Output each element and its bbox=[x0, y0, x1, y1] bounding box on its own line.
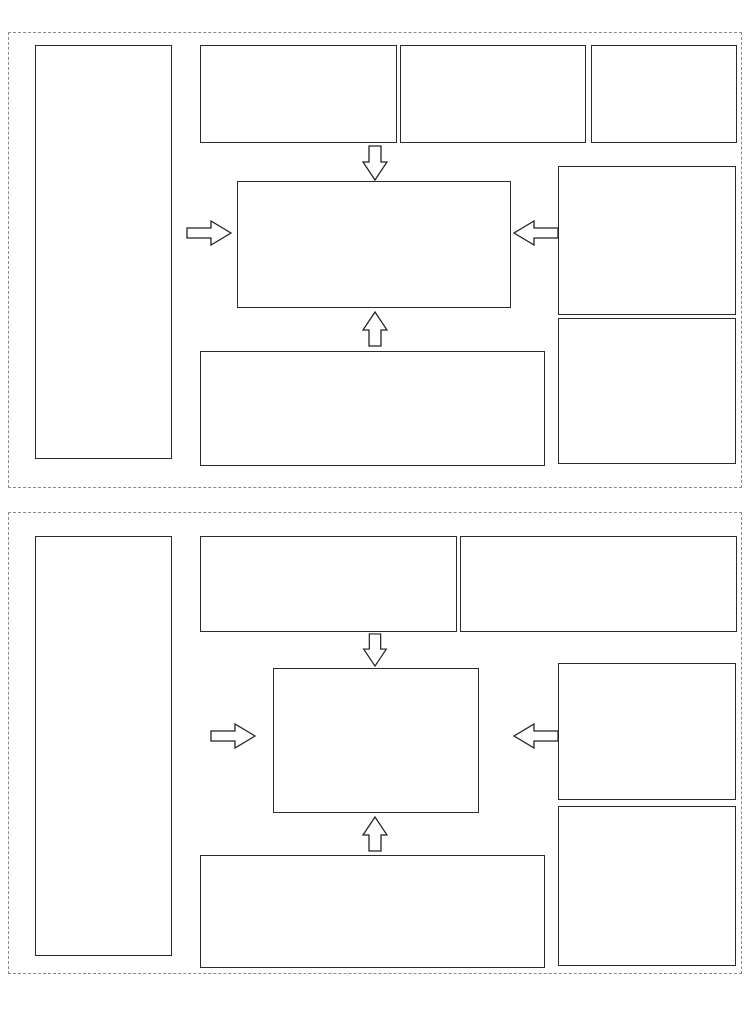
valve-control-inner bbox=[201, 352, 544, 465]
terminal-layout-box-s1 bbox=[237, 181, 511, 308]
output-box-s2 bbox=[558, 806, 736, 966]
flow-arrow-down-s1 bbox=[362, 145, 388, 181]
valve-control-box-s2 bbox=[200, 855, 545, 968]
sv-input-box-s1 bbox=[200, 45, 397, 143]
flow-arrow-right-s2 bbox=[210, 722, 256, 750]
terminal-layout bbox=[240, 185, 508, 304]
output-units bbox=[559, 807, 735, 965]
pv-input-groups bbox=[36, 542, 171, 899]
flow-arrow-left-s2 bbox=[513, 722, 559, 750]
pv-input-box-s1 bbox=[35, 45, 172, 459]
alarm-output-box-s1 bbox=[400, 45, 586, 143]
valve-control-box-s1 bbox=[200, 351, 545, 466]
alarm-output-box-s2 bbox=[460, 536, 737, 632]
power-box-s1 bbox=[558, 166, 736, 315]
power-units bbox=[559, 167, 735, 314]
terminal-layout bbox=[274, 669, 478, 812]
flow-arrow-left-s1 bbox=[513, 219, 559, 247]
pv-input-box-s2 bbox=[35, 536, 172, 956]
wiring-diagram-page bbox=[0, 0, 750, 1009]
flow-arrow-down-s2 bbox=[362, 633, 388, 667]
valve-control-inner bbox=[201, 856, 544, 967]
terminal-layout-box-s2 bbox=[273, 668, 479, 813]
flow-arrow-up-s1 bbox=[362, 311, 388, 347]
output-units bbox=[559, 319, 735, 463]
rs485-box bbox=[591, 45, 737, 143]
pv-input-groups bbox=[36, 51, 171, 402]
flow-arrow-up-s2 bbox=[362, 816, 388, 852]
flow-arrow-right-s1 bbox=[186, 219, 232, 247]
sv-input-box-s2 bbox=[200, 536, 457, 632]
output-box-s1 bbox=[558, 318, 736, 464]
power-box-s2 bbox=[558, 663, 736, 800]
power-units bbox=[559, 664, 735, 799]
